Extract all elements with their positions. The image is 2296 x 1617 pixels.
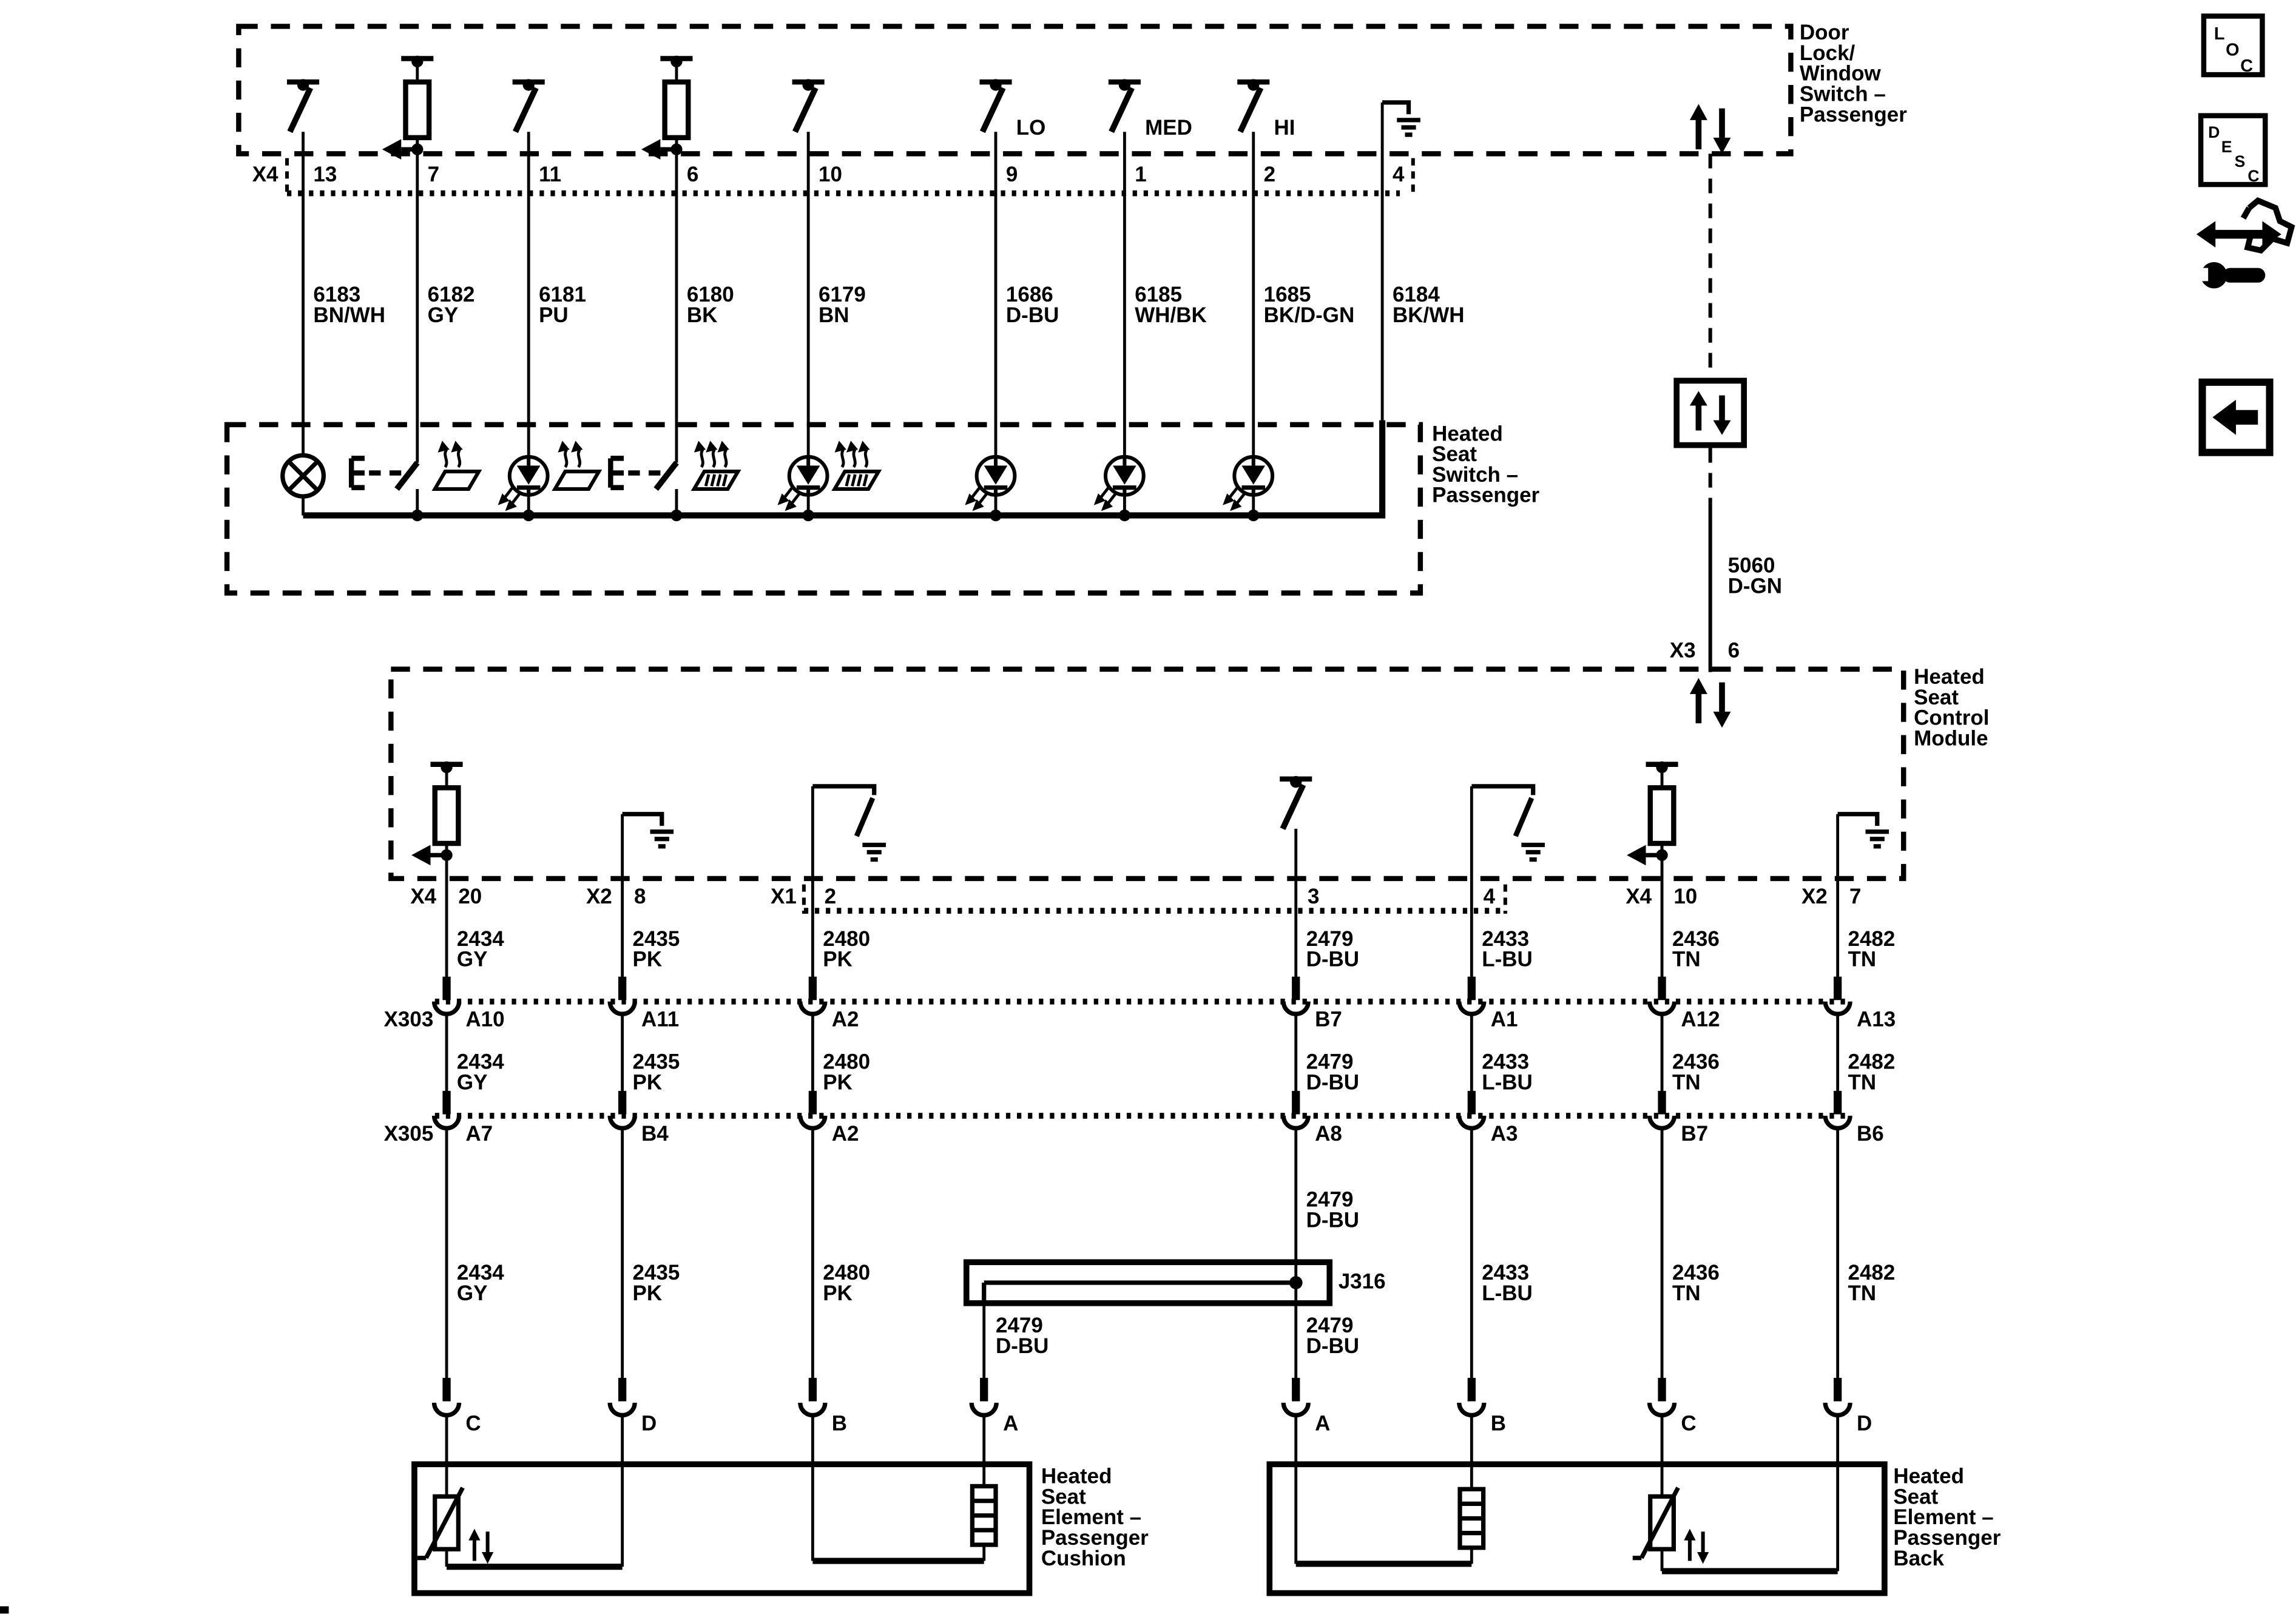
switch-position-label: HI [1274, 116, 1295, 140]
connector-name: X305 [384, 1122, 434, 1146]
component-box-outline [391, 669, 1903, 879]
ground-symbol [1382, 103, 1420, 135]
heated-seat-switch-passenger: Heated Seat Switch – Passenger [227, 420, 1539, 593]
heated-seat-low-icon [435, 441, 479, 489]
svg-text:Back: Back [1893, 1547, 1944, 1570]
svg-text:PK: PK [633, 1070, 663, 1094]
svg-text:D: D [2208, 123, 2220, 141]
svg-text:A10: A10 [465, 1008, 504, 1031]
svg-text:GY: GY [428, 303, 459, 327]
svg-text:B: B [832, 1412, 847, 1436]
pin-number: 10 [819, 163, 842, 186]
component-box-outline [238, 26, 1791, 154]
svg-text:A11: A11 [641, 1008, 679, 1031]
wire-color: BN/WH [313, 303, 385, 327]
connector-repair-button[interactable] [2195, 201, 2291, 289]
top-wires: 6183 BN/WH 6182 GY 6181 PU 6180 BK 6179 … [303, 103, 1465, 516]
heated-seat-control-module: Heated Seat Control Module X4 2 [391, 665, 1989, 914]
svg-text:2: 2 [825, 885, 836, 908]
back-button[interactable] [2203, 382, 2270, 453]
module-pin-row: X4 20 X2 8 X1 2 3 4 X4 10 X2 7 [410, 885, 1861, 914]
element-connector-row: C D B A A B C D [434, 1378, 1872, 1436]
splice-name: J316 [1339, 1270, 1386, 1294]
wire-color: D-GN [1728, 574, 1782, 598]
svg-text:BK/D-GN: BK/D-GN [1264, 303, 1355, 327]
led-icon [498, 457, 548, 511]
wrench-icon [2195, 262, 2265, 288]
svg-text:A7: A7 [465, 1122, 493, 1146]
loc-button[interactable]: L O C [2204, 16, 2263, 76]
switched-ground-symbol [812, 786, 886, 860]
door-lock-window-switch-passenger: Door Lock/ Window Switch – Passenger LO … [238, 21, 1907, 160]
svg-text:Passenger: Passenger [1800, 103, 1907, 126]
switch-position-label: MED [1145, 116, 1192, 140]
pin-number: 6 [687, 163, 698, 186]
pin-number: 1 [1135, 163, 1146, 186]
svg-text:B7: B7 [1315, 1008, 1342, 1031]
heater-element-icon [1460, 1489, 1484, 1548]
svg-text:GY: GY [457, 1070, 488, 1094]
pin-number: 13 [313, 163, 337, 186]
ground-symbol [623, 814, 674, 846]
connector-name: X3 [1670, 639, 1696, 663]
svg-text:D-BU: D-BU [1306, 1208, 1359, 1232]
svg-text:GY: GY [457, 948, 488, 971]
svg-text:B7: B7 [1681, 1122, 1708, 1146]
heater-element-icon [972, 1486, 996, 1545]
svg-text:O: O [2226, 41, 2240, 60]
pin-number: 6 [1728, 639, 1740, 663]
led-driver-symbol [411, 761, 462, 865]
svg-text:X4: X4 [410, 885, 436, 908]
svg-text:A3: A3 [1491, 1122, 1518, 1146]
svg-text:BN: BN [819, 303, 849, 327]
svg-text:PK: PK [823, 948, 853, 971]
heated-seat-element-cushion: Heated Seat Element – Passenger Cushion [414, 1414, 1149, 1593]
pin-number: 7 [428, 163, 439, 186]
svg-text:BK/WH: BK/WH [1393, 303, 1465, 327]
svg-text:X4: X4 [1626, 885, 1652, 908]
desc-button[interactable]: D E S C [2201, 116, 2265, 186]
led-icon [777, 457, 827, 511]
svg-text:BK: BK [687, 303, 718, 327]
connector-x303-row: X303 A10 A11 A2 B7 A1 A12 A13 [384, 977, 1896, 1031]
connector-name: X4 [252, 163, 279, 186]
svg-text:A13: A13 [1857, 1008, 1896, 1031]
svg-text:D-BU: D-BU [1006, 303, 1059, 327]
svg-text:L-BU: L-BU [1482, 1281, 1533, 1305]
nav-icons: L O C D E S C [2195, 16, 2291, 453]
serial-data-link: 5060 D-GN X3 6 [1670, 154, 1782, 672]
serial-data-arrows-icon [1690, 678, 1731, 727]
svg-text:A: A [1003, 1412, 1018, 1436]
switch-position-label: LO [1016, 116, 1046, 140]
switched-ground-symbol [1471, 786, 1545, 860]
inline-connector-icon [1676, 380, 1744, 445]
svg-text:C: C [465, 1412, 481, 1436]
svg-text:B4: B4 [641, 1122, 669, 1146]
svg-text:X2: X2 [1801, 885, 1828, 908]
heated-seat-element-back: Heated Seat Element – Passenger Back [1269, 1414, 2001, 1593]
svg-text:TN: TN [1672, 948, 1701, 971]
led-driver-symbol [1627, 761, 1678, 865]
svg-text:10: 10 [1673, 885, 1697, 908]
svg-text:TN: TN [1848, 1070, 1877, 1094]
connector-name: X303 [384, 1008, 434, 1031]
svg-text:D-BU: D-BU [1306, 948, 1359, 971]
svg-text:D-BU: D-BU [1306, 1334, 1359, 1358]
svg-text:X2: X2 [586, 885, 612, 908]
lower-wires: 2434 GY 2435 PK 2480 PK 2433 L-BU 2436 T… [447, 1127, 1895, 1379]
heated-seat-high-icon [835, 441, 879, 489]
svg-text:PK: PK [633, 1281, 663, 1305]
svg-text:PU: PU [539, 303, 569, 327]
switch-symbol [1280, 776, 1312, 829]
svg-text:7: 7 [1849, 885, 1861, 908]
svg-text:4: 4 [1484, 885, 1496, 908]
svg-text:A2: A2 [832, 1122, 859, 1146]
pin-number: 11 [539, 163, 561, 186]
wiring-diagram: Door Lock/ Window Switch – Passenger LO … [0, 0, 2296, 1616]
svg-text:Cushion: Cushion [1041, 1547, 1126, 1570]
detent-switch-icon [351, 458, 417, 489]
svg-text:GY: GY [457, 1281, 488, 1305]
component-box-outline [227, 425, 1420, 593]
svg-text:A12: A12 [1681, 1008, 1720, 1031]
illumination-resistor-symbol [382, 56, 693, 160]
serial-data-arrows-icon [1690, 104, 1731, 154]
connector-x305-row: X305 A7 B4 A2 A8 A3 B7 B6 [384, 1091, 1884, 1146]
page-corner-mark [0, 1606, 8, 1613]
led-icon [1094, 457, 1144, 511]
pin-number: 2 [1264, 163, 1275, 186]
svg-text:L-BU: L-BU [1482, 1070, 1533, 1094]
indicator-lamp-icon [283, 456, 324, 497]
svg-text:20: 20 [458, 885, 482, 908]
svg-text:Module: Module [1914, 726, 1988, 750]
svg-text:D-BU: D-BU [1306, 1070, 1359, 1094]
splice-dot [1289, 1276, 1303, 1289]
svg-text:D: D [1857, 1412, 1872, 1436]
connector-outline-icon [2247, 201, 2291, 251]
common-bus [303, 420, 1383, 516]
component-box-outline [414, 1464, 1030, 1593]
pin-number: 4 [1393, 163, 1405, 186]
svg-text:C: C [1681, 1412, 1696, 1436]
led-icon [1223, 457, 1272, 511]
svg-text:B6: B6 [1857, 1122, 1884, 1146]
svg-text:8: 8 [634, 885, 646, 908]
svg-text:PK: PK [823, 1281, 853, 1305]
svg-text:PK: PK [633, 948, 663, 971]
svg-text:L-BU: L-BU [1482, 948, 1533, 971]
svg-text:3: 3 [1308, 885, 1319, 908]
heated-seat-high-icon [694, 441, 738, 489]
svg-text:L: L [2214, 24, 2225, 44]
detent-switch-icon [610, 458, 677, 489]
svg-text:A8: A8 [1315, 1122, 1342, 1146]
double-arrow-icon [2196, 221, 2215, 247]
svg-text:D-BU: D-BU [996, 1334, 1048, 1358]
svg-text:C: C [2240, 56, 2253, 76]
svg-text:A1: A1 [1491, 1008, 1518, 1031]
svg-text:WH/BK: WH/BK [1135, 303, 1207, 327]
led-icon [965, 457, 1015, 511]
svg-text:S: S [2235, 152, 2246, 170]
svg-text:TN: TN [1848, 1281, 1877, 1305]
svg-text:B: B [1491, 1412, 1506, 1436]
svg-text:E: E [2221, 138, 2232, 156]
svg-text:C: C [2247, 167, 2259, 185]
switch-symbol [287, 79, 1269, 132]
ground-symbol [1838, 814, 1889, 846]
splice-j316: 2479 D-BU J316 2479 D-BU 2479 D-BU [967, 1188, 1386, 1358]
svg-text:TN: TN [1672, 1070, 1701, 1094]
svg-text:TN: TN [1848, 948, 1877, 971]
svg-text:PK: PK [823, 1070, 853, 1094]
pin-number: 9 [1006, 163, 1018, 186]
connector-x4-row: X4 13 7 11 6 10 9 1 2 4 [252, 158, 1413, 197]
svg-text:TN: TN [1672, 1281, 1701, 1305]
svg-text:A2: A2 [832, 1008, 859, 1031]
heated-seat-low-icon [555, 441, 599, 489]
svg-text:Passenger: Passenger [1432, 484, 1539, 507]
svg-text:D: D [641, 1412, 657, 1436]
svg-text:A: A [1315, 1412, 1330, 1436]
svg-text:X1: X1 [771, 885, 797, 908]
